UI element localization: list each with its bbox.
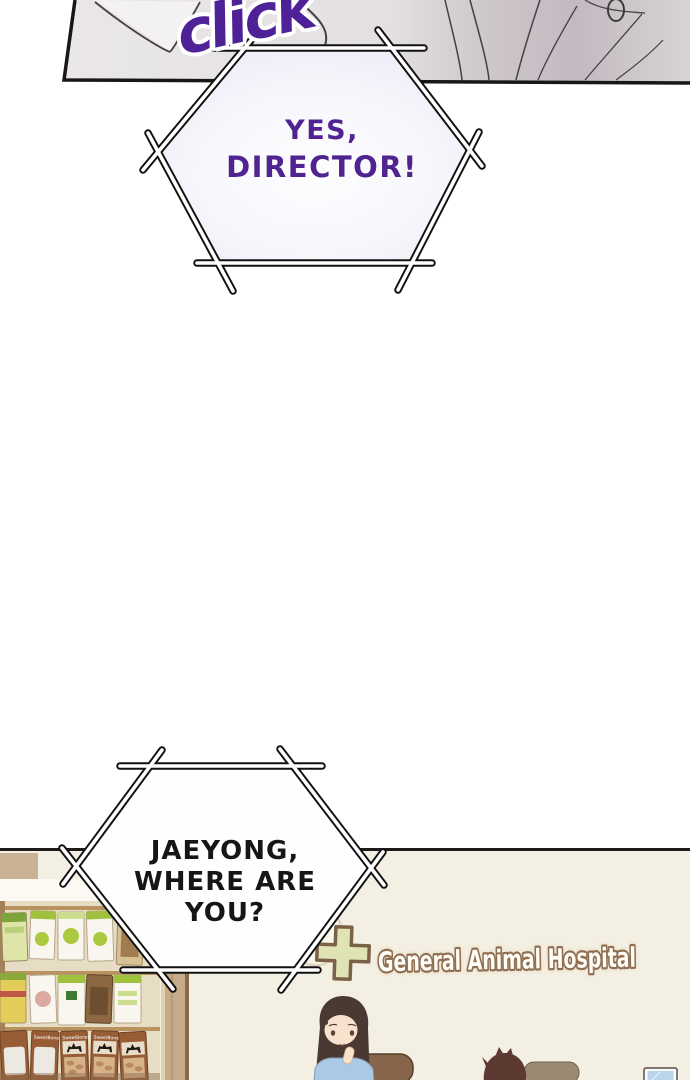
treat-brand-label: SweetBones	[94, 1035, 122, 1042]
treat-brand-label: SweetBones	[34, 1035, 62, 1042]
treat-row-3: SweetBones SweetBones SweetBones	[0, 1030, 148, 1080]
monitor	[644, 1068, 677, 1080]
dialogue-line: WHERE ARE YOU?	[90, 867, 360, 929]
treat-brand-label: SweetBones	[62, 1034, 90, 1041]
bubble-yes-text: YES, DIRECTOR!	[212, 114, 432, 186]
comic-page: YES, DIRECTOR! click	[0, 0, 690, 1080]
bubble-jaeyong-text: JAEYONG, WHERE ARE YOU?	[90, 836, 360, 929]
visitor-chair	[524, 1062, 579, 1080]
dialogue-line: YES,	[212, 114, 432, 148]
dialogue-line: JAEYONG,	[90, 836, 360, 867]
visitor-head	[482, 1047, 527, 1080]
dialogue-line: DIRECTOR!	[212, 148, 432, 186]
